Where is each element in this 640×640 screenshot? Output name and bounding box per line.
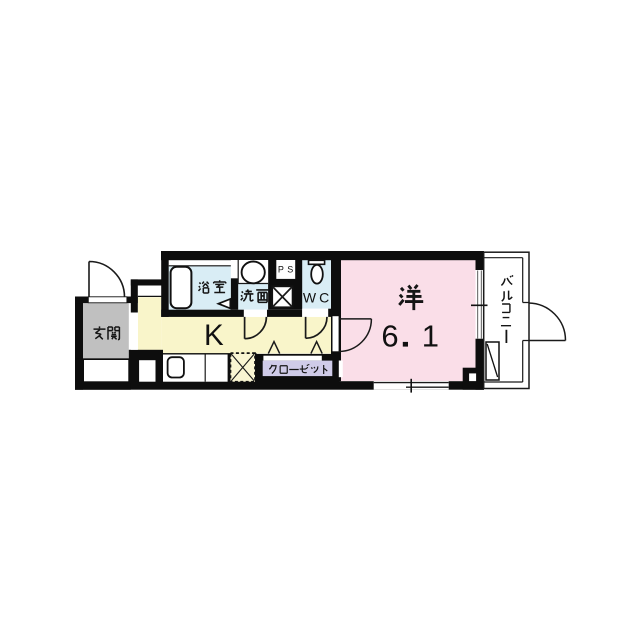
svg-text:PS: PS [278,265,297,275]
svg-text:1: 1 [422,319,439,354]
svg-text:K: K [204,319,224,352]
svg-text:6: 6 [381,319,398,354]
svg-text:WC: WC [303,289,332,305]
